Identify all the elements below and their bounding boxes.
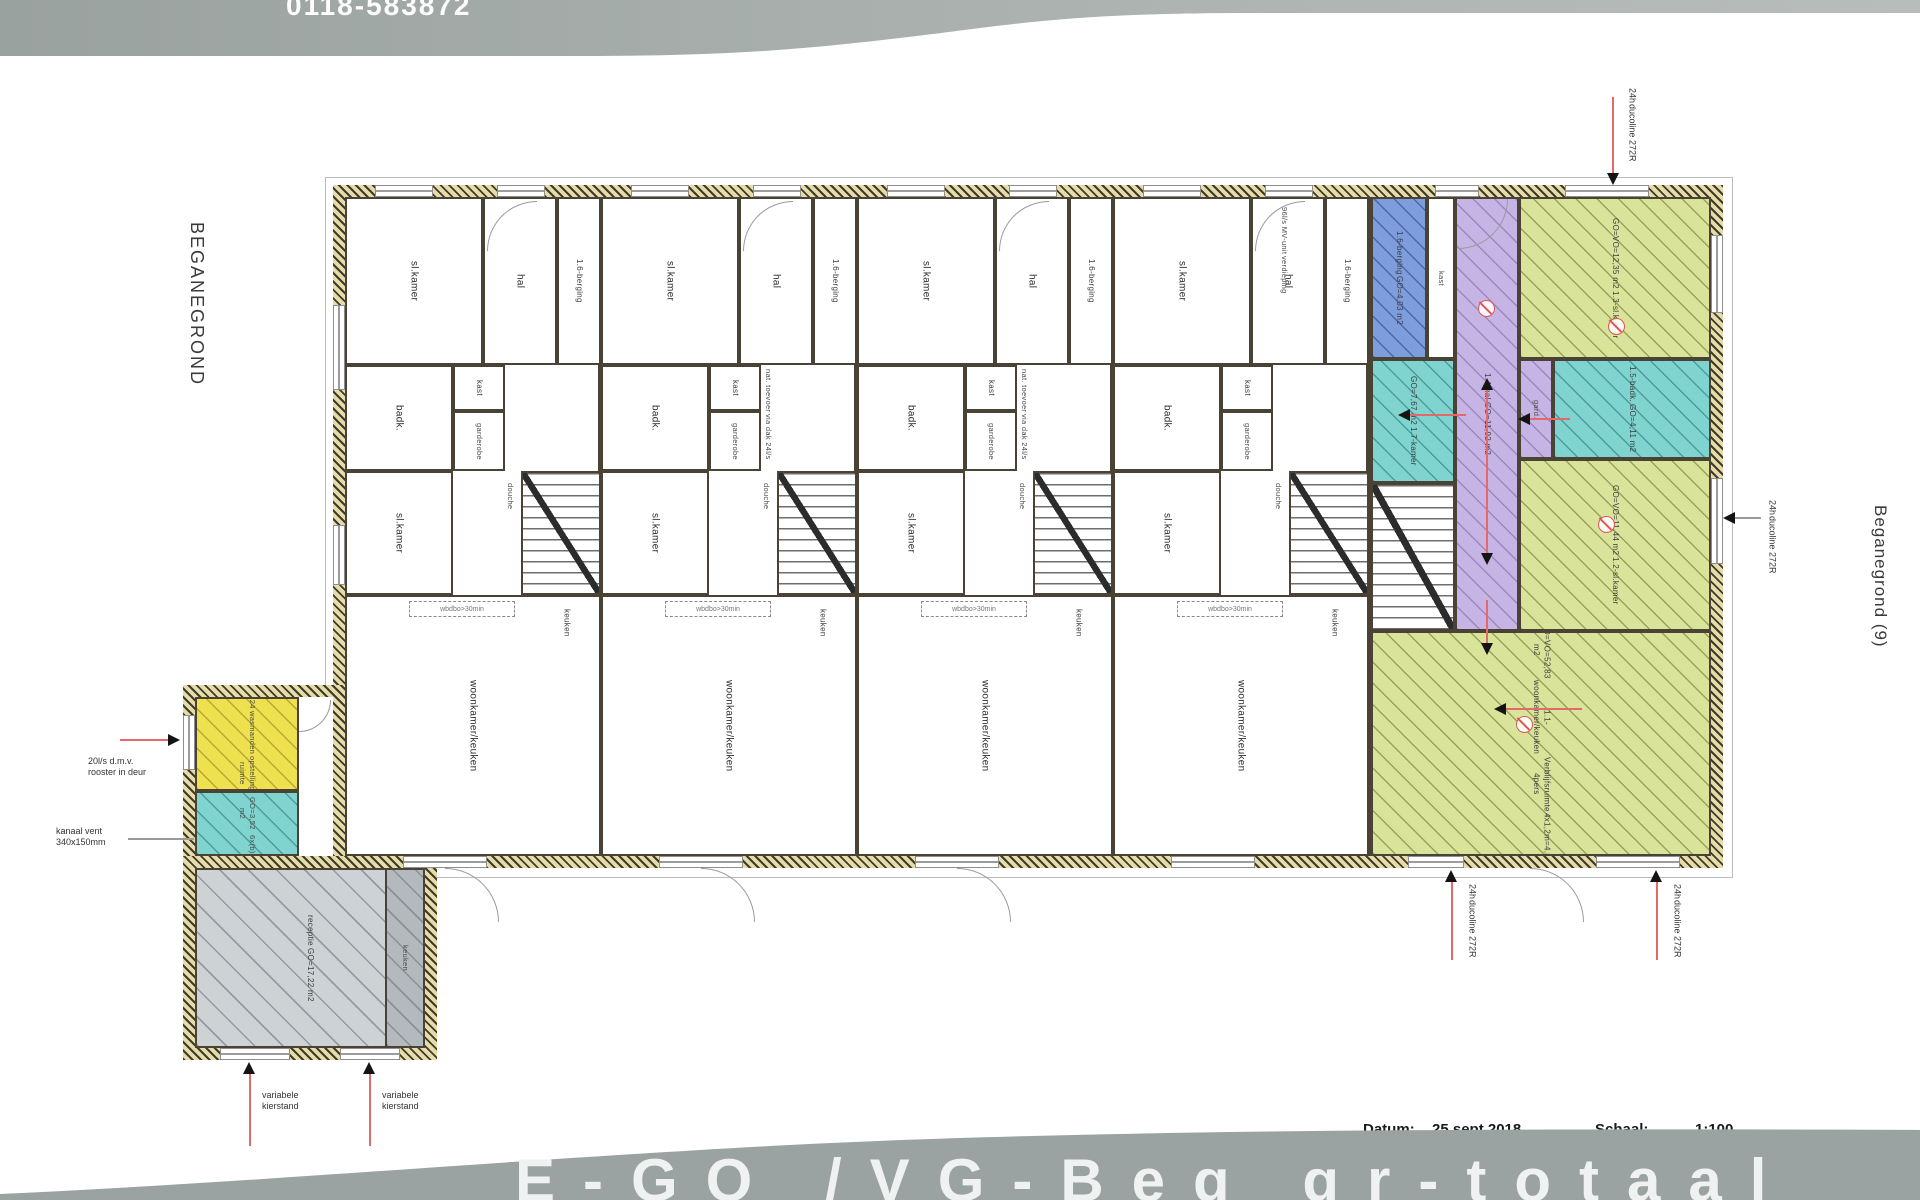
room-wardrobe: garderobe xyxy=(1221,411,1273,471)
window xyxy=(887,185,945,197)
vent-leader-line xyxy=(120,739,168,741)
kanaal-note: kanaal vent 340x150mm xyxy=(56,826,126,849)
ducoline-note: 24hducoline 272R xyxy=(1766,500,1778,574)
window xyxy=(1009,185,1057,197)
room-shower-label: douche xyxy=(761,483,771,509)
room-shower-label: douche xyxy=(1273,483,1283,509)
vent-leader-line xyxy=(1612,97,1614,173)
room-closet: kast xyxy=(1427,197,1455,359)
room-bedroom: sl.kamer xyxy=(601,197,739,365)
window xyxy=(340,1048,400,1060)
airflow-line xyxy=(1504,708,1582,710)
sheet-title-left: BEGANEGROND xyxy=(186,222,207,386)
airflow-line xyxy=(1528,418,1570,420)
room-shower-label: douche xyxy=(505,483,515,509)
staircase xyxy=(1289,471,1369,595)
room-berging-blue: 1.6-bergingGO=4,03 m2 xyxy=(1371,197,1427,359)
vent-arrow xyxy=(1650,870,1662,882)
kierstand-arrow xyxy=(243,1062,255,1074)
window xyxy=(333,525,345,585)
airflow-arrow-left xyxy=(1518,413,1530,425)
staircase xyxy=(521,471,601,595)
airflow-arrow-down xyxy=(1481,643,1493,655)
window xyxy=(753,185,801,197)
room-laundry: GO=4,24 m2wasmandenopstelling ruimte3x(b… xyxy=(195,697,299,791)
vent-leader-line xyxy=(1656,882,1658,960)
vent-leader-line xyxy=(1735,517,1761,519)
dwelling-unit: sl.kamer hal 1.6-berging badk. kast gard… xyxy=(857,197,1113,856)
window xyxy=(1435,185,1479,197)
window xyxy=(1711,235,1723,313)
room-storage: 1.6-berging xyxy=(557,197,601,365)
vent-arrow xyxy=(1445,870,1457,882)
room-bath: badk. xyxy=(1113,365,1221,471)
room-17: GO=7,67 m21.7-kamer xyxy=(1371,359,1455,483)
airflow-line xyxy=(1486,600,1488,645)
room-wardrobe: garderobe xyxy=(709,411,761,471)
airflow-arrow-down xyxy=(1481,553,1493,565)
room-wardrobe: garderobe xyxy=(453,411,505,471)
room-kitchen-label: keuken xyxy=(817,609,827,637)
roof-vent-note: nat. toevoervia dak 24l/s xyxy=(1019,369,1029,460)
room-kitchen-label: keuken xyxy=(1329,609,1339,637)
airflow-arrow-left xyxy=(1398,409,1410,421)
room-bedroom: sl.kamer xyxy=(1113,471,1221,595)
window xyxy=(333,305,345,390)
roof-vent-note: nat. toevoervia dak 24l/s xyxy=(763,369,773,460)
room-closet: kast xyxy=(709,365,761,411)
ducoline-note: 24hducoline 272R xyxy=(1671,884,1683,958)
window xyxy=(631,185,689,197)
window xyxy=(497,185,545,197)
window xyxy=(1265,185,1313,197)
vent-leader-line xyxy=(1451,882,1453,960)
room-bath: badk. xyxy=(857,365,965,471)
smoke-detector-symbol xyxy=(1598,516,1615,533)
room-storage: 1.6-berging xyxy=(1069,197,1113,365)
room-wardrobe: garderobe xyxy=(965,411,1017,471)
room-bath: badk. xyxy=(345,365,453,471)
window xyxy=(1596,856,1680,868)
dwelling-unit: sl.kamer hal 1.6-berging badk. kast gard… xyxy=(345,197,601,856)
room-annex-kitchen: keuken xyxy=(385,868,425,1048)
room-bath-15: 1.5-badk.GO=4,11 m2 xyxy=(1553,359,1711,459)
leader-line xyxy=(128,838,194,840)
staircase xyxy=(1033,471,1113,595)
room-storage: 1.6-berging xyxy=(1325,197,1369,365)
window xyxy=(1143,185,1201,197)
window xyxy=(1408,856,1464,868)
fire-resistance-note: wbdbo>30min xyxy=(921,601,1027,617)
sheet-title-right: Beganegrond (9) xyxy=(1870,505,1890,648)
kierstand-arrow xyxy=(363,1062,375,1074)
room-bedroom-12: GO=VO=11,44 m21.2-sl.kamer xyxy=(1519,459,1711,631)
ducoline-note: 24hducoline 272R xyxy=(1466,884,1478,958)
window xyxy=(183,715,195,770)
room-shower-label: douche xyxy=(1017,483,1027,509)
room-closet: kast xyxy=(965,365,1017,411)
airflow-line xyxy=(1486,390,1488,555)
room-kitchen-label: keuken xyxy=(561,609,571,637)
dwelling-unit: sl.kamer hal 1.6-berging 96l/s MV-unitve… xyxy=(1113,197,1369,856)
staircase xyxy=(777,471,857,595)
room-bath: badk. xyxy=(601,365,709,471)
fire-resistance-note: wbdbo>30min xyxy=(665,601,771,617)
room-tech: GO=3,52 m26x(b) xyxy=(195,791,299,856)
room-wardrobe-small: gard. xyxy=(1519,359,1553,459)
vent-arrow xyxy=(168,734,180,746)
fire-resistance-note: wbdbo>30min xyxy=(409,601,515,617)
fire-resistance-note: wbdbo>30min xyxy=(1177,601,1283,617)
room-bedroom: sl.kamer xyxy=(857,197,995,365)
window xyxy=(659,856,743,868)
room-living-11: GO=VO=52,83 m21.1-woonkamer/keukenVerbli… xyxy=(1371,631,1711,856)
room-storage: 1.6-berging xyxy=(813,197,857,365)
airflow-arrow-left xyxy=(1494,703,1506,715)
phone-number: 0118-583872 xyxy=(286,0,472,22)
window xyxy=(1171,856,1255,868)
window xyxy=(915,856,999,868)
window xyxy=(1565,185,1649,197)
window xyxy=(220,1048,290,1060)
room-bedroom: sl.kamer xyxy=(857,471,965,595)
vent-arrow xyxy=(1723,512,1735,524)
room-kitchen-label: keuken xyxy=(1073,609,1083,637)
window xyxy=(375,185,433,197)
smoke-detector-symbol xyxy=(1608,318,1625,335)
window xyxy=(1711,478,1723,564)
room-closet: kast xyxy=(1221,365,1273,411)
room-closet: kast xyxy=(453,365,505,411)
rooster-note: 20l/s d.m.v. rooster in deur xyxy=(88,756,160,779)
room-bedroom: sl.kamer xyxy=(1113,197,1251,365)
banner-title: E-GO /VG-Beg gr-totaal xyxy=(515,1146,1794,1200)
smoke-detector-symbol xyxy=(1478,300,1495,317)
dwelling-unit: sl.kamer hal 1.6-berging badk. kast gard… xyxy=(601,197,857,856)
vent-arrow xyxy=(1607,173,1619,185)
room-bedroom: sl.kamer xyxy=(345,197,483,365)
airflow-line xyxy=(1408,414,1466,416)
floorplan-sheet: 0118-583872 BEGANEGROND Beganegrond (9) … xyxy=(0,0,1920,1200)
smoke-detector-symbol xyxy=(1516,716,1533,733)
airflow-arrow-up xyxy=(1481,378,1493,390)
staircase xyxy=(1371,483,1455,631)
ducoline-note: 24hducoline 272R xyxy=(1626,88,1638,162)
room-bedroom: sl.kamer xyxy=(601,471,709,595)
window xyxy=(403,856,487,868)
room-bedroom: sl.kamer xyxy=(345,471,453,595)
